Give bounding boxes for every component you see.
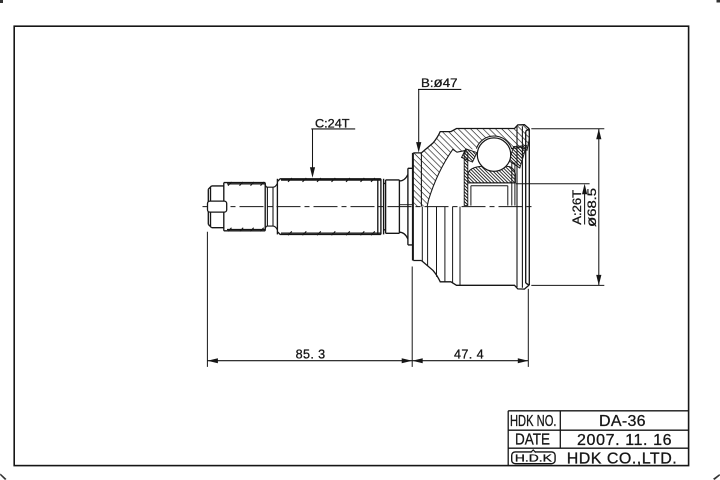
svg-text:HDK CO.,LTD.: HDK CO.,LTD. <box>567 450 677 467</box>
svg-text:C:24T: C:24T <box>315 116 350 130</box>
svg-text:DA-36: DA-36 <box>599 413 646 430</box>
svg-text:2007. 11. 16: 2007. 11. 16 <box>577 432 672 449</box>
svg-text:85. 3: 85. 3 <box>296 348 326 362</box>
svg-text:DATE: DATE <box>515 431 550 448</box>
svg-text:H.D.K: H.D.K <box>515 453 552 465</box>
svg-text:B:ø47: B:ø47 <box>421 75 458 90</box>
svg-text:ø68.5: ø68.5 <box>584 188 599 227</box>
svg-text:47. 4: 47. 4 <box>454 348 484 362</box>
svg-text:A:26T: A:26T <box>570 189 584 225</box>
svg-text:HDK NO.: HDK NO. <box>510 413 557 430</box>
